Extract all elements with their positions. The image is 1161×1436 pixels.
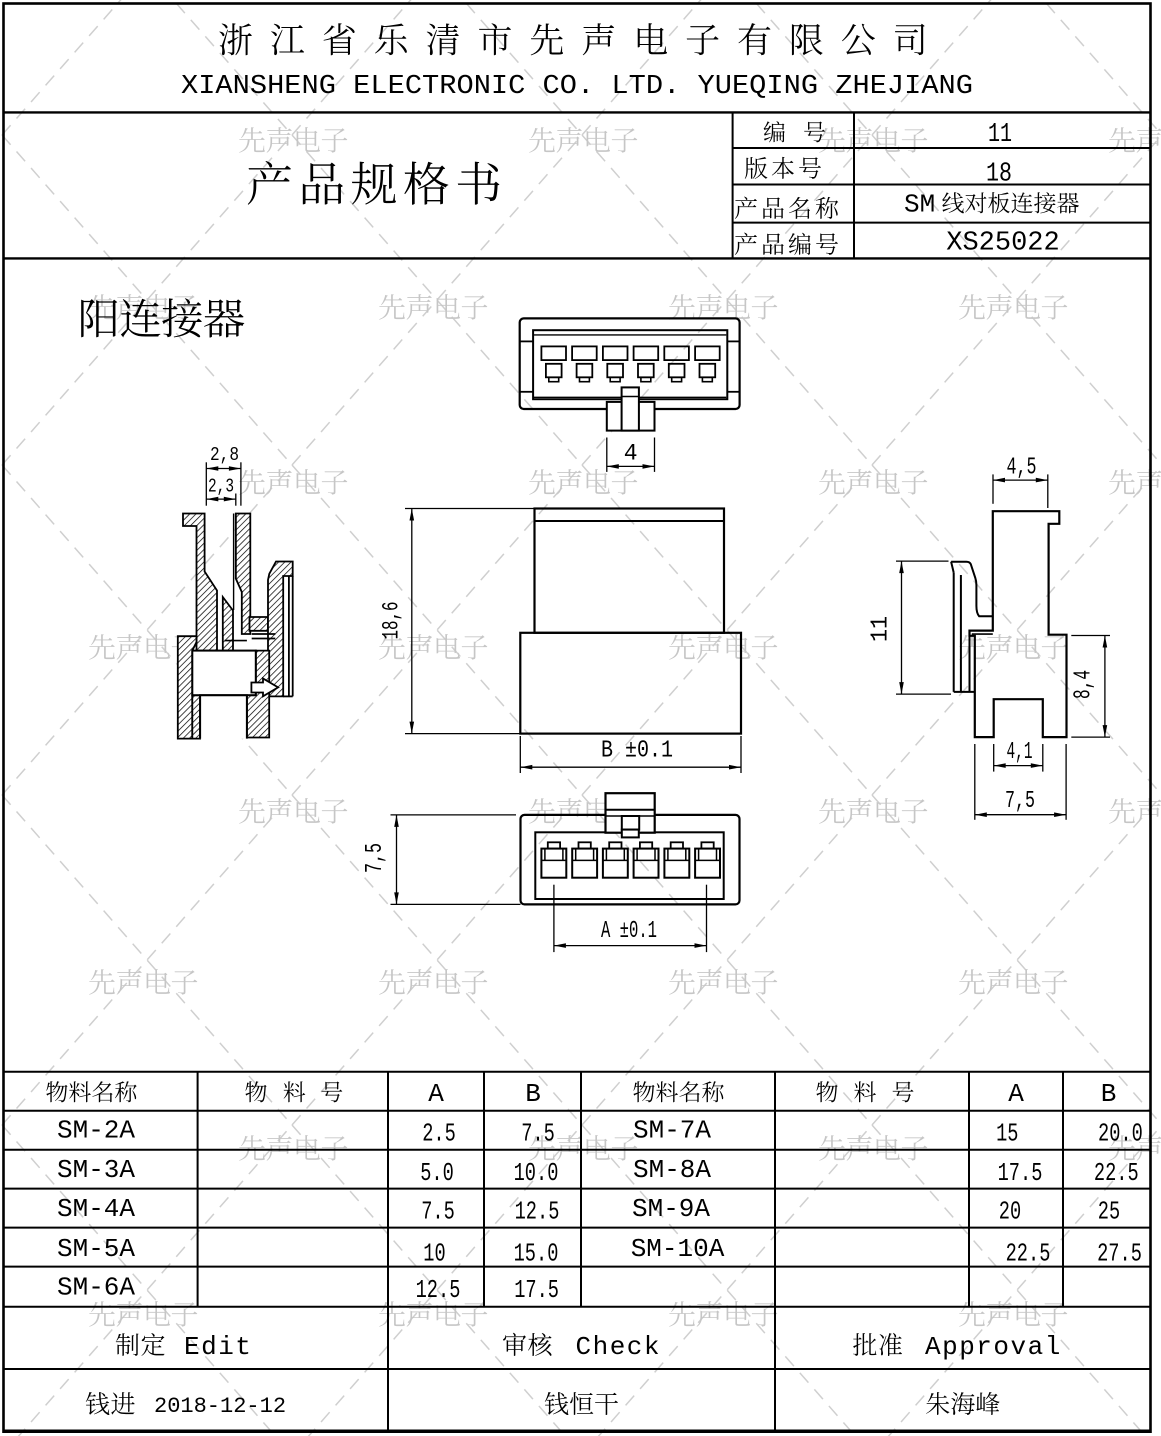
svg-text:SM-3A: SM-3A — [57, 1155, 135, 1185]
svg-text:15: 15 — [996, 1119, 1018, 1149]
svg-text:22.5: 22.5 — [1006, 1239, 1051, 1269]
svg-text:20.0: 20.0 — [1098, 1119, 1143, 1149]
svg-text:Edit: Edit — [184, 1332, 252, 1362]
svg-text:2018-12-12: 2018-12-12 — [154, 1394, 286, 1419]
svg-text:4: 4 — [624, 441, 638, 467]
svg-text:17.5: 17.5 — [998, 1158, 1043, 1188]
svg-text:A: A — [428, 1079, 444, 1109]
svg-text:27.5: 27.5 — [1097, 1239, 1142, 1269]
svg-text:5.0: 5.0 — [420, 1158, 454, 1188]
svg-text:4,5: 4,5 — [1007, 455, 1037, 482]
svg-text:12.5: 12.5 — [416, 1275, 461, 1305]
svg-text:Approval: Approval — [925, 1332, 1062, 1362]
svg-text:A ±0.1: A ±0.1 — [601, 918, 657, 945]
svg-text:XS25022: XS25022 — [946, 229, 1059, 259]
svg-text:17.5: 17.5 — [514, 1275, 559, 1305]
svg-text:10.0: 10.0 — [514, 1158, 559, 1188]
svg-text:18: 18 — [986, 160, 1012, 190]
svg-text:2,8: 2,8 — [210, 444, 239, 466]
svg-text:15.0: 15.0 — [514, 1239, 559, 1269]
svg-text:2.5: 2.5 — [422, 1119, 456, 1149]
svg-text:XIANSHENG ELECTRONIC CO. LTD.: XIANSHENG ELECTRONIC CO. LTD. YUEQING ZH… — [181, 72, 973, 102]
svg-text:Check: Check — [576, 1332, 662, 1362]
svg-text:7.5: 7.5 — [421, 1197, 455, 1227]
svg-text:25: 25 — [1098, 1197, 1120, 1227]
svg-text:B: B — [1101, 1079, 1117, 1109]
svg-text:11: 11 — [988, 120, 1012, 150]
svg-text:2,3: 2,3 — [208, 475, 234, 497]
svg-text:18,6: 18,6 — [379, 602, 405, 640]
svg-text:SM: SM — [904, 190, 935, 220]
svg-text:SM-8A: SM-8A — [633, 1155, 711, 1185]
svg-text:SM-10A: SM-10A — [631, 1234, 725, 1264]
svg-text:SM-2A: SM-2A — [57, 1116, 135, 1146]
svg-text:SM-4A: SM-4A — [57, 1194, 135, 1224]
svg-text:SM-6A: SM-6A — [57, 1273, 135, 1303]
svg-text:B: B — [525, 1079, 541, 1109]
svg-text:11: 11 — [868, 616, 895, 642]
svg-text:SM-7A: SM-7A — [633, 1116, 711, 1146]
svg-text:8,4: 8,4 — [1071, 670, 1098, 699]
svg-text:10: 10 — [423, 1239, 445, 1269]
svg-text:4,1: 4,1 — [1007, 739, 1033, 766]
svg-text:A: A — [1008, 1079, 1024, 1109]
svg-text:SM-9A: SM-9A — [632, 1194, 710, 1224]
svg-text:20: 20 — [999, 1197, 1021, 1227]
svg-text:12.5: 12.5 — [515, 1197, 560, 1227]
svg-text:7,5: 7,5 — [1005, 788, 1035, 815]
svg-text:7.5: 7.5 — [521, 1119, 555, 1149]
svg-text:22.5: 22.5 — [1094, 1158, 1139, 1188]
svg-text:B ±0.1: B ±0.1 — [601, 738, 673, 765]
svg-text:SM-5A: SM-5A — [57, 1234, 135, 1264]
svg-text:7,5: 7,5 — [362, 843, 389, 873]
